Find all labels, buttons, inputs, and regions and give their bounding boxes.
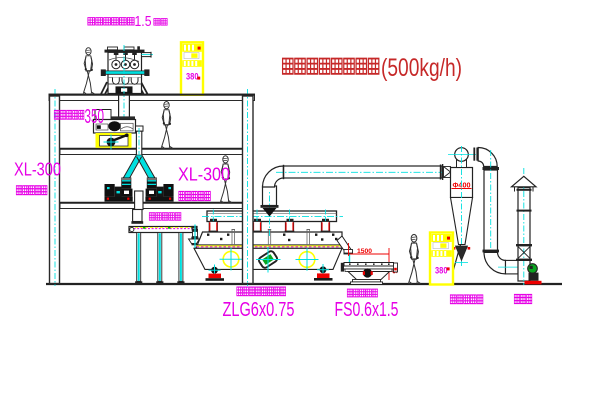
svg-text:350: 350	[85, 106, 105, 128]
svg-text:ZLG6x0.75: ZLG6x0.75	[223, 299, 295, 321]
svg-text:FS0.6x1.5: FS0.6x1.5	[335, 299, 399, 321]
svg-text:1.5: 1.5	[135, 14, 152, 30]
svg-text:380: 380	[435, 266, 448, 276]
svg-text:380: 380	[186, 72, 199, 82]
svg-text:XL-300: XL-300	[178, 164, 230, 184]
svg-text:(500kg/h): (500kg/h)	[381, 54, 462, 82]
svg-text:1500: 1500	[357, 248, 372, 255]
svg-text:XL-300: XL-300	[14, 160, 61, 180]
